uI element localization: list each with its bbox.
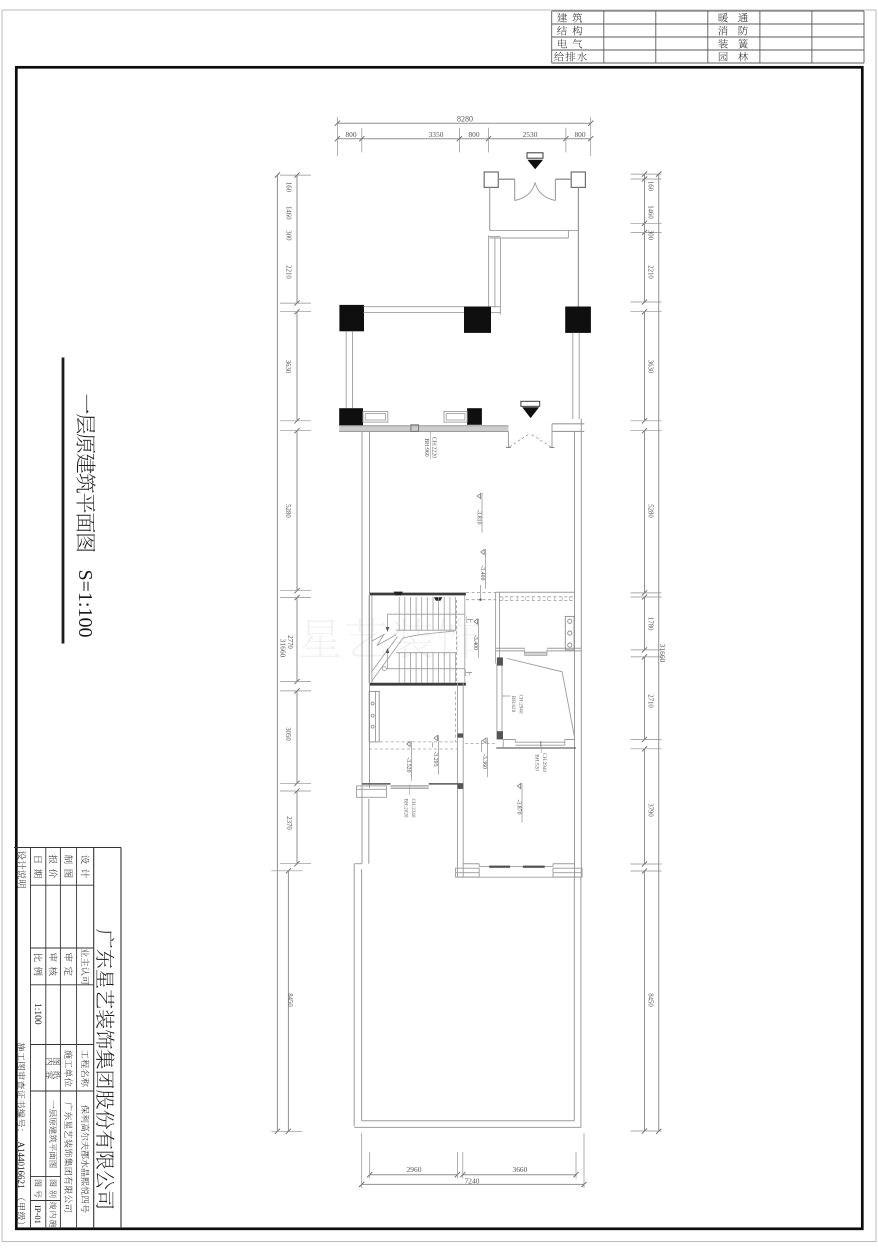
- svg-text:CH:2940: CH:2940: [541, 753, 547, 772]
- svg-text:BH:820: BH:820: [510, 696, 516, 713]
- svg-text:8450: 8450: [647, 993, 654, 1007]
- svg-text:3630: 3630: [647, 360, 654, 374]
- svg-text:-3.520: -3.520: [405, 758, 411, 773]
- svg-text:800: 800: [574, 130, 585, 139]
- svg-text:300: 300: [647, 230, 654, 241]
- svg-text:CH:2940: CH:2940: [517, 694, 523, 713]
- svg-text:-3.360: -3.360: [481, 754, 487, 769]
- svg-text:800: 800: [345, 130, 356, 139]
- svg-text:2210: 2210: [285, 265, 292, 279]
- svg-text:3660: 3660: [513, 1165, 528, 1174]
- svg-text:IP-01: IP-01: [33, 1205, 43, 1224]
- svg-text:3050: 3050: [284, 727, 291, 741]
- svg-text:1460: 1460: [647, 205, 654, 219]
- svg-text:800: 800: [468, 130, 479, 139]
- svg-text:2960: 2960: [407, 1165, 422, 1174]
- svg-text:-3.870: -3.870: [516, 800, 522, 815]
- svg-text:A144016621: A144016621: [16, 1142, 26, 1189]
- svg-text:160: 160: [285, 182, 292, 193]
- svg-text:160: 160: [647, 181, 654, 192]
- svg-text:-3.295: -3.295: [432, 752, 438, 767]
- svg-text:S=1:100: S=1:100: [74, 570, 96, 638]
- svg-text:-3.810: -3.810: [476, 510, 482, 525]
- svg-text:2710: 2710: [647, 694, 654, 708]
- svg-text:8280: 8280: [457, 115, 473, 124]
- svg-text:3630: 3630: [284, 360, 291, 374]
- svg-text:300: 300: [285, 230, 292, 241]
- svg-text:3350: 3350: [429, 130, 444, 139]
- svg-text:-3.400: -3.400: [479, 566, 485, 581]
- svg-text:7240: 7240: [465, 1177, 480, 1186]
- svg-text:2770: 2770: [286, 635, 293, 649]
- svg-text:1460: 1460: [285, 206, 292, 220]
- svg-text:8450: 8450: [286, 993, 293, 1007]
- svg-text:3790: 3790: [647, 803, 654, 817]
- svg-text:CH:2240: CH:2240: [410, 798, 416, 817]
- svg-text:2370: 2370: [285, 816, 292, 830]
- svg-text:5280: 5280: [647, 504, 654, 518]
- svg-text:1:100: 1:100: [32, 1003, 42, 1025]
- svg-text:2210: 2210: [647, 265, 654, 279]
- svg-text:BH:960: BH:960: [423, 438, 429, 456]
- svg-text:31660: 31660: [658, 644, 667, 663]
- svg-text:BH:2020: BH:2020: [403, 798, 409, 817]
- svg-text:CH:2220: CH:2220: [430, 437, 436, 458]
- svg-text:2530: 2530: [523, 130, 538, 139]
- svg-text:5280: 5280: [284, 504, 291, 518]
- svg-text:BH:520: BH:520: [534, 754, 540, 771]
- svg-text:1780: 1780: [647, 617, 654, 631]
- svg-text:31660: 31660: [278, 639, 287, 658]
